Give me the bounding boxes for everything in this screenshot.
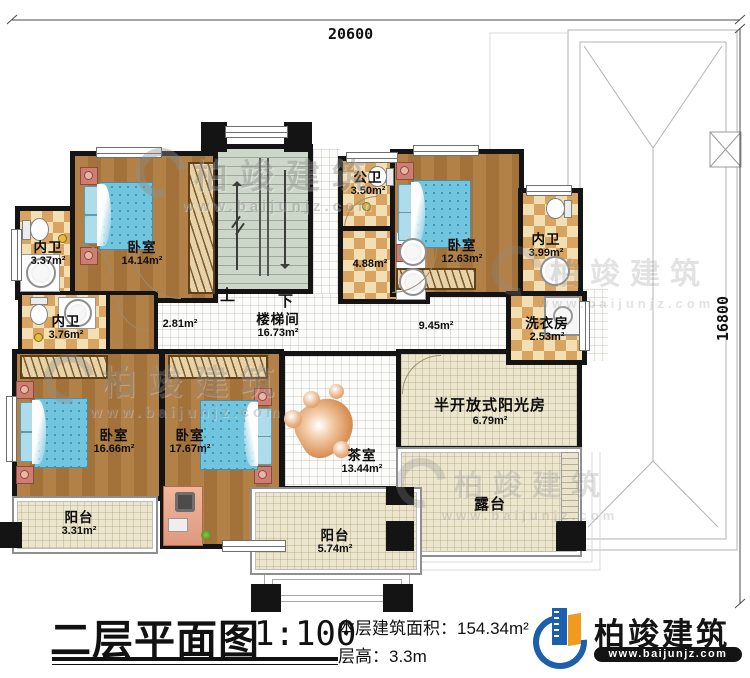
window bbox=[222, 540, 286, 552]
computer-monitor bbox=[175, 492, 195, 512]
window bbox=[225, 126, 288, 138]
window bbox=[6, 396, 17, 462]
pillow bbox=[257, 436, 272, 465]
floor-plan-canvas: 20600 16800 上 下 bbox=[0, 0, 750, 678]
dimension-height: 16800 bbox=[714, 296, 732, 341]
label-bedroom-bottom-center: 卧室17.67m² bbox=[150, 428, 230, 455]
watermark: 柏竣建筑 www.baijunjz.com bbox=[396, 458, 618, 523]
brand-building-icon bbox=[532, 607, 588, 663]
plant bbox=[201, 530, 211, 540]
label-balcony-left: 阳台3.31m² bbox=[48, 510, 110, 537]
label-hall-sub-left: 2.81m² bbox=[158, 318, 202, 330]
decor-stone bbox=[303, 391, 320, 408]
watermark: 柏竣建筑 www.baijunjz.com bbox=[136, 148, 378, 215]
label-bath-top-left: 内卫3.37m² bbox=[22, 240, 74, 267]
window bbox=[526, 185, 572, 196]
label-balcony-center: 阳台5.74m² bbox=[303, 528, 367, 555]
decor-stone bbox=[284, 410, 302, 428]
pillar bbox=[0, 522, 22, 548]
label-bedroom-top-left: 卧室14.14m² bbox=[100, 240, 184, 267]
label-tea-room: 茶室13.44m² bbox=[330, 448, 394, 475]
floor-area-info: 本层建筑面积：154.34m² bbox=[338, 614, 529, 639]
title-underline bbox=[52, 657, 338, 661]
floor-height-info: 层高：3.3m bbox=[338, 642, 427, 667]
nightstand bbox=[80, 167, 98, 185]
nightstand bbox=[396, 162, 414, 180]
watermark: 柏竣建筑 www.baijunjz.com bbox=[492, 246, 714, 311]
pillar bbox=[556, 521, 586, 551]
pillar bbox=[386, 521, 414, 551]
nightstand bbox=[16, 381, 34, 399]
decor-stone bbox=[329, 384, 344, 399]
watermark: 柏竣建筑 www.baijunjz.com bbox=[44, 354, 286, 421]
keyboard bbox=[168, 518, 188, 532]
label-basin-area: 4.88m² bbox=[342, 258, 398, 270]
stair-up-label: 上 bbox=[220, 284, 235, 305]
label-laundry: 洗衣房2.53m² bbox=[512, 316, 582, 343]
floor-height-value: 3.3m bbox=[389, 647, 427, 666]
nightstand bbox=[16, 466, 34, 484]
label-bedroom-top-right: 卧室12.63m² bbox=[424, 238, 500, 265]
stair-down-label: 下 bbox=[278, 290, 293, 311]
label-hall-sub-right: 9.45m² bbox=[412, 320, 460, 332]
pillar bbox=[383, 584, 413, 612]
label-bedroom-bottom-left: 卧室16.66m² bbox=[78, 428, 150, 455]
dimension-width: 20600 bbox=[328, 25, 373, 43]
label-stair-hall: 楼梯间16.73m² bbox=[238, 312, 318, 339]
label-bath-mid-left: 内卫3.76m² bbox=[36, 314, 96, 341]
brand-url: www.baijunjz.com bbox=[594, 647, 742, 662]
title-underline-thin bbox=[52, 664, 338, 665]
window bbox=[413, 145, 479, 156]
bath-divider-wall bbox=[338, 226, 394, 231]
stair-arrow-down-head bbox=[280, 264, 290, 274]
floor-area-value: 154.34m² bbox=[457, 619, 529, 638]
label-sunroom: 半开放式阳光房6.79m² bbox=[414, 398, 566, 427]
window bbox=[11, 229, 22, 281]
